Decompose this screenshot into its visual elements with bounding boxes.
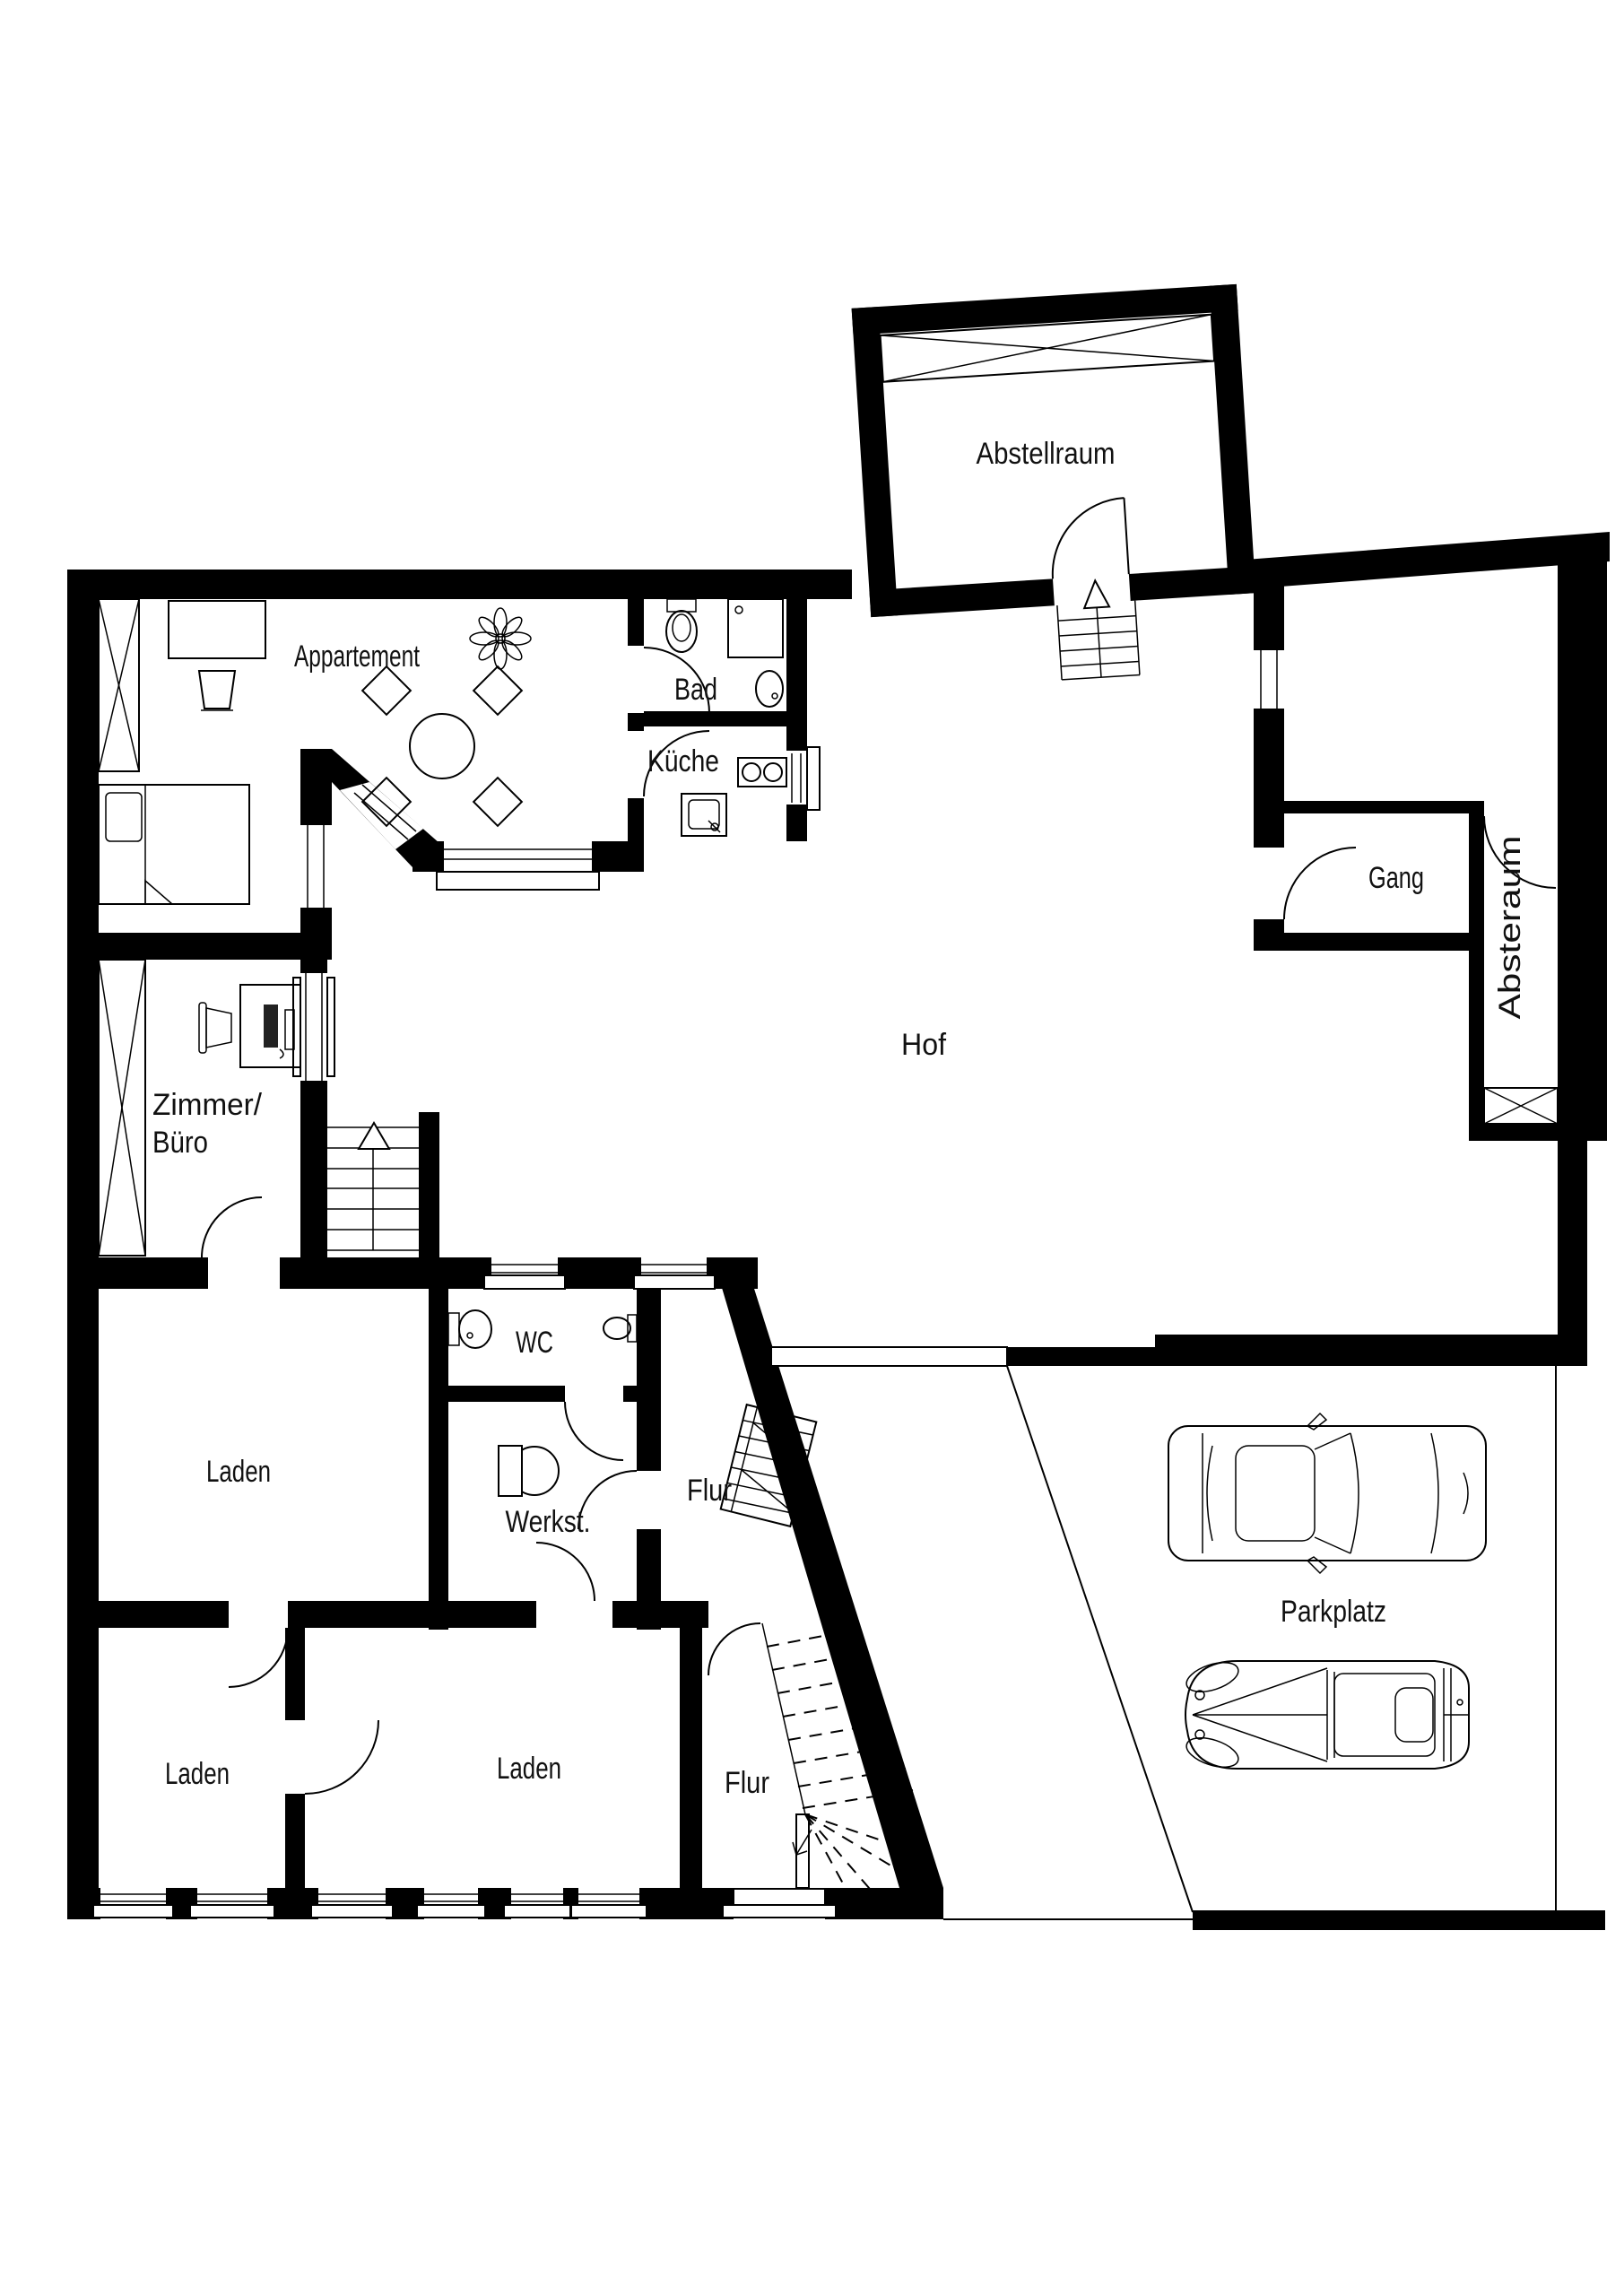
room-label-wc: WC xyxy=(516,1326,553,1360)
wall-gang-south xyxy=(1254,933,1484,951)
sink-icon xyxy=(604,1315,637,1342)
wall-zimmer-east-b xyxy=(300,1081,327,1257)
room-appartement: Appartement xyxy=(67,599,644,960)
window-bigroom-west xyxy=(1261,650,1277,709)
wardrobe-icon xyxy=(99,960,145,1256)
wall-bedroom-east-b xyxy=(300,908,332,958)
wall-lowband-b xyxy=(288,1601,536,1628)
window-icon xyxy=(417,1888,485,1919)
wall-wc-west xyxy=(429,1289,448,1630)
car-sedan-icon xyxy=(1168,1413,1486,1573)
bed-icon xyxy=(99,785,249,904)
wall-top-right-tilted xyxy=(1245,532,1610,589)
wall-appartement-zimmer-divider xyxy=(67,933,332,960)
wall-absteraum-south xyxy=(1469,1124,1558,1141)
room-label-laden-lower-mid: Laden xyxy=(497,1752,561,1786)
room-zimmer-buero: Zimmer/ Büro xyxy=(99,960,334,1257)
door-arc-laden-mid xyxy=(305,1720,378,1794)
door-arc-wc xyxy=(565,1402,623,1460)
door-arc-abstellraum xyxy=(1048,498,1129,578)
wall-wc-divider-a xyxy=(448,1386,565,1402)
door-arc-werkstatt-south xyxy=(536,1543,595,1601)
entrance-threshold xyxy=(723,1888,836,1919)
wardrobe-icon xyxy=(99,599,139,771)
window-icon xyxy=(190,1888,274,1919)
abstellraum-wall-top xyxy=(852,284,1238,335)
wall-laden-divider-b xyxy=(285,1794,305,1888)
wall-laden-divider-a xyxy=(285,1628,305,1720)
wall-kueche-west xyxy=(628,798,644,841)
window-icon xyxy=(93,1888,173,1919)
stairs-abstellraum-icon xyxy=(1055,578,1140,680)
wall-top-outer xyxy=(67,570,852,599)
room-label-abstellraum: Abstellraum xyxy=(977,437,1116,471)
wall-left-outer xyxy=(67,570,99,1919)
window-bedroom-east xyxy=(308,825,324,908)
wall-stairs-east xyxy=(419,1112,439,1257)
room-label-werkstatt: Werkst. xyxy=(506,1505,591,1539)
wall-hof-south-left xyxy=(1007,1347,1155,1366)
plant-icon xyxy=(470,608,531,669)
room-label-bad: Bad xyxy=(674,673,717,707)
toilet-icon xyxy=(666,599,697,652)
wall-bigroom-south xyxy=(1284,801,1484,813)
wall-bad-kueche-divider xyxy=(644,711,786,726)
window-kueche-east xyxy=(792,747,820,810)
window-south-gap xyxy=(444,841,592,872)
door-arc-gang xyxy=(1284,848,1356,919)
toilet-icon xyxy=(448,1310,491,1348)
wall-band-a xyxy=(67,1257,208,1289)
room-label-zimmer-line1: Zimmer/ xyxy=(152,1088,263,1122)
stairs-main-icon xyxy=(327,1112,439,1257)
wall-corridor-band xyxy=(67,1257,758,1289)
wall-band-c xyxy=(558,1257,641,1289)
wall-parkplatz-bottom xyxy=(1193,1910,1605,1930)
room-label-flur-lower: Flur xyxy=(725,1766,769,1800)
room-label-hof: Hof xyxy=(901,1028,947,1062)
walls-lower-laden xyxy=(285,1628,702,1888)
room-label-kueche: Küche xyxy=(647,744,719,778)
wall-hof-south-right xyxy=(1155,1335,1587,1366)
area-label-parkplatz: Parkplatz xyxy=(1281,1595,1386,1629)
wall-bad-west-b xyxy=(628,713,644,731)
wall-werkstatt-east-a xyxy=(637,1289,661,1471)
window-zimmer-east xyxy=(293,973,334,1081)
abstellraum-wall-left xyxy=(852,307,899,617)
room-label-flur-mid: Flur xyxy=(687,1474,732,1508)
door-arc-zimmer xyxy=(202,1197,262,1257)
abstellraum-wall-bottom-left xyxy=(869,578,1054,617)
wall-right-outer-upper xyxy=(1558,549,1607,1141)
abstellraum-wall-bottom-right xyxy=(1129,566,1256,601)
room-label-absteraum: Absteraum xyxy=(1493,836,1527,1020)
wall-lower-band xyxy=(67,1543,708,1687)
stove-icon xyxy=(738,758,786,787)
wall-bad-west-a xyxy=(628,599,644,646)
wall-zimmer-east-a xyxy=(300,960,327,973)
car-oldtimer-icon xyxy=(1183,1657,1469,1772)
floor-plan-page: Appartement xyxy=(0,0,1624,2296)
parkplatz-boundary-left xyxy=(1007,1366,1193,1912)
shelf-icon xyxy=(1484,1088,1558,1124)
window-flur-corridor xyxy=(634,1265,715,1289)
window-icon xyxy=(571,1888,647,1919)
wall-lowband-a xyxy=(67,1601,229,1628)
gate-fence-icon xyxy=(771,1347,1007,1366)
room-label-appartement: Appartement xyxy=(294,639,420,674)
utility-sink-icon xyxy=(499,1446,559,1496)
window-wc-corridor xyxy=(484,1265,565,1289)
shower-icon xyxy=(728,599,783,657)
wall-absteraum-west xyxy=(1469,813,1484,1141)
room-label-gang: Gang xyxy=(1368,861,1424,895)
computer-desk-icon xyxy=(199,985,300,1067)
kitchen-sink-icon xyxy=(682,794,726,836)
window-south-sill xyxy=(437,872,599,890)
floor-plan-svg: Appartement xyxy=(0,0,1624,2296)
wall-bigroom-west-a xyxy=(1254,574,1284,650)
wall-bigroom-west-b xyxy=(1254,709,1284,848)
window-icon xyxy=(504,1888,570,1919)
rooms-bad-kueche: Bad Küche xyxy=(628,599,820,841)
door-arc-laden-upper xyxy=(229,1628,288,1687)
rooms-right-wing: Gang Absteraum xyxy=(1254,574,1558,1141)
stairs-up-arrow-icon xyxy=(1082,580,1109,609)
sink-icon xyxy=(756,671,783,707)
wall-right-outer-lower xyxy=(1558,1141,1587,1366)
wall-flur-lower-west xyxy=(680,1628,702,1888)
room-abstellraum-structure xyxy=(852,284,1261,691)
window-icon xyxy=(311,1888,393,1919)
desk-icon xyxy=(169,601,265,710)
room-label-zimmer-line2: Büro xyxy=(152,1126,208,1160)
wall-kueche-east xyxy=(786,804,807,841)
room-label-laden-lower-left: Laden xyxy=(165,1757,230,1791)
wall-lowband-c xyxy=(612,1601,708,1628)
wall-band-b xyxy=(280,1257,491,1289)
abstellraum-wall-right xyxy=(1210,284,1256,595)
room-label-laden-upper: Laden xyxy=(206,1455,271,1489)
wall-wc-divider-b xyxy=(623,1386,637,1402)
wall-bad-east xyxy=(786,599,807,751)
door-arc-flur-lower xyxy=(708,1623,760,1675)
